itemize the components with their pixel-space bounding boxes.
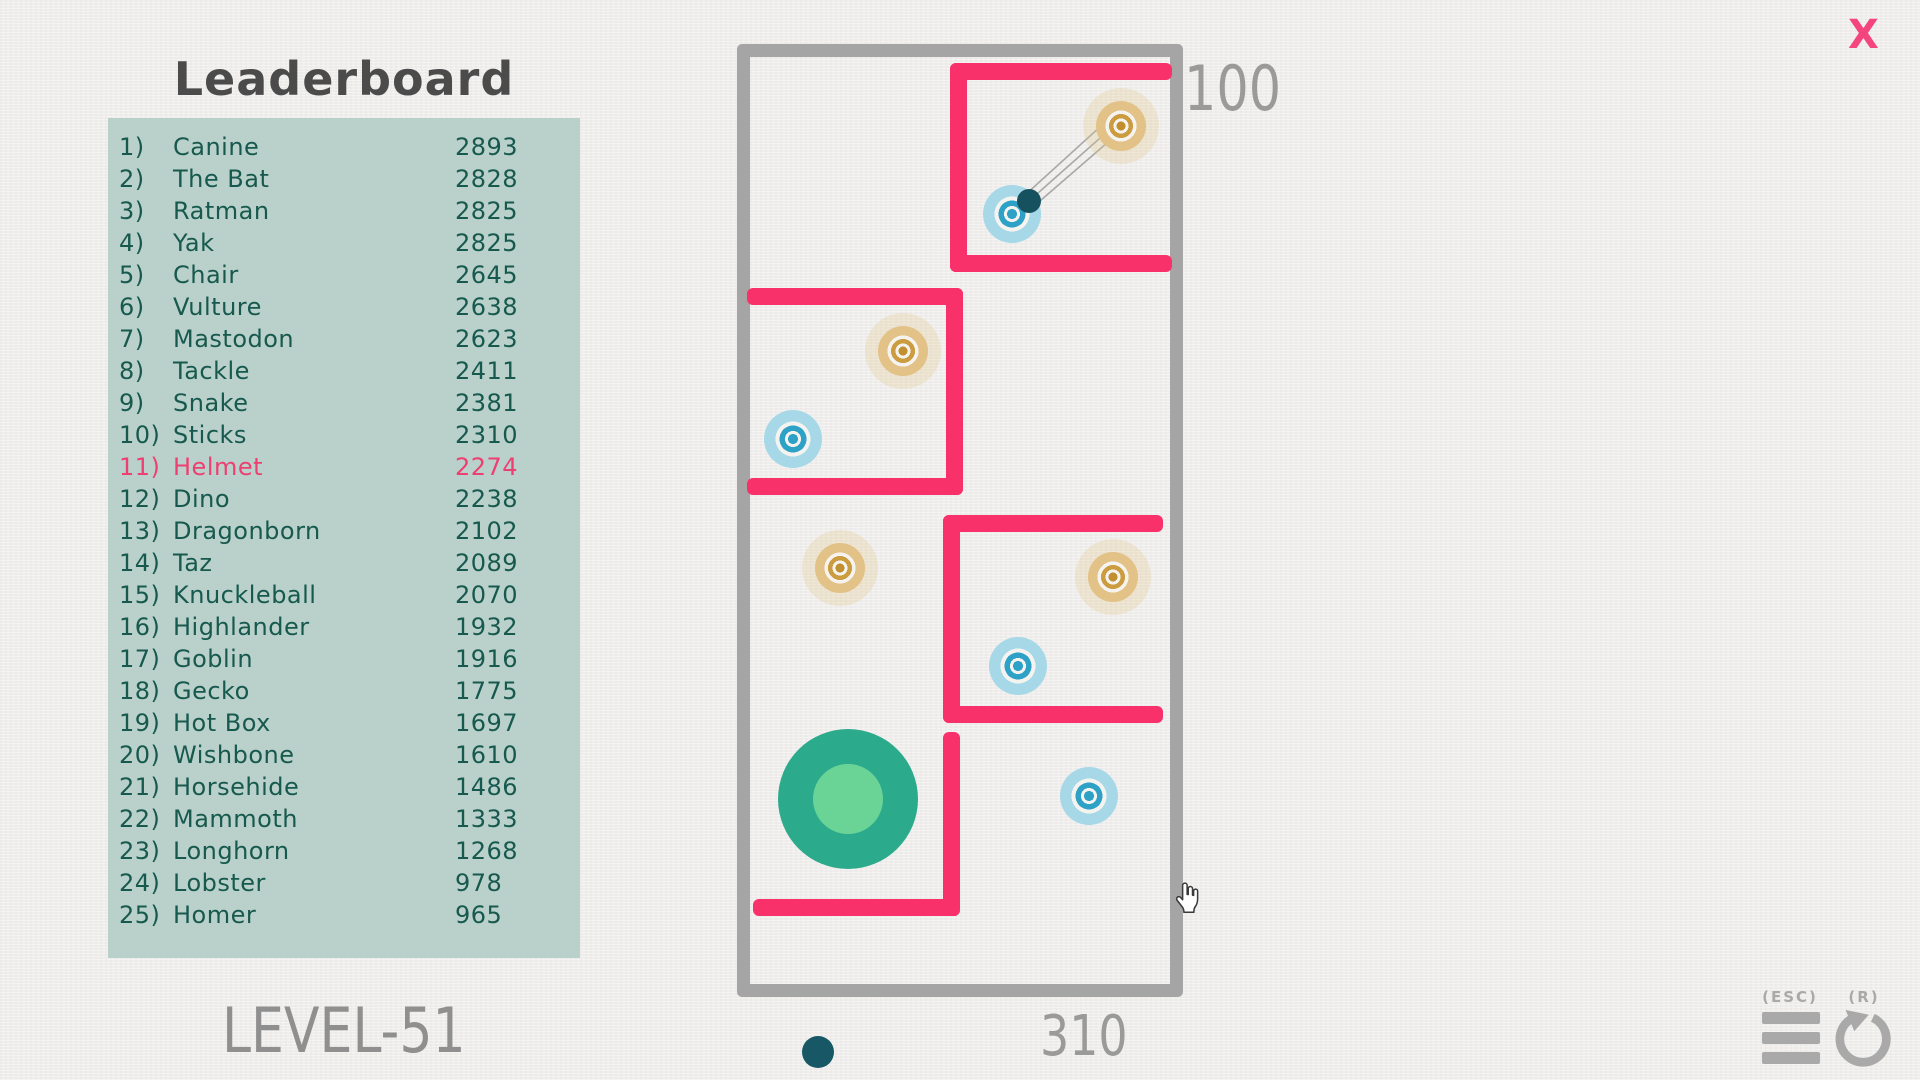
esc-key-label: (ESC)	[1760, 988, 1820, 1006]
orange-target	[815, 543, 865, 593]
score-top: 100	[1184, 52, 1281, 125]
ball	[1017, 189, 1041, 213]
restart-button[interactable]	[1832, 1006, 1894, 1068]
start-circle	[778, 729, 918, 869]
r-key-label: (R)	[1836, 988, 1892, 1006]
orange-target	[1088, 552, 1138, 602]
restart-icon	[1832, 1006, 1894, 1068]
score-bottom: 310	[1040, 1004, 1128, 1069]
close-button[interactable]: X	[1848, 12, 1879, 58]
menu-icon	[1762, 1032, 1820, 1044]
orange-target	[878, 326, 928, 376]
menu-icon	[1762, 1052, 1820, 1064]
ball-trail	[0, 0, 1920, 1080]
shots-remaining-dot	[802, 1036, 834, 1068]
orange-target	[1096, 101, 1146, 151]
blue-target	[989, 637, 1047, 695]
board-area[interactable]	[0, 0, 1920, 1080]
blue-target	[1060, 767, 1118, 825]
menu-icon	[1762, 1012, 1820, 1024]
menu-button[interactable]	[1762, 1012, 1820, 1064]
mouse-cursor	[1172, 882, 1202, 919]
game-stage: Leaderboard 1)Canine28932)The Bat28283)R…	[0, 0, 1920, 1080]
start-circle-inner	[813, 764, 883, 834]
blue-target	[764, 410, 822, 468]
